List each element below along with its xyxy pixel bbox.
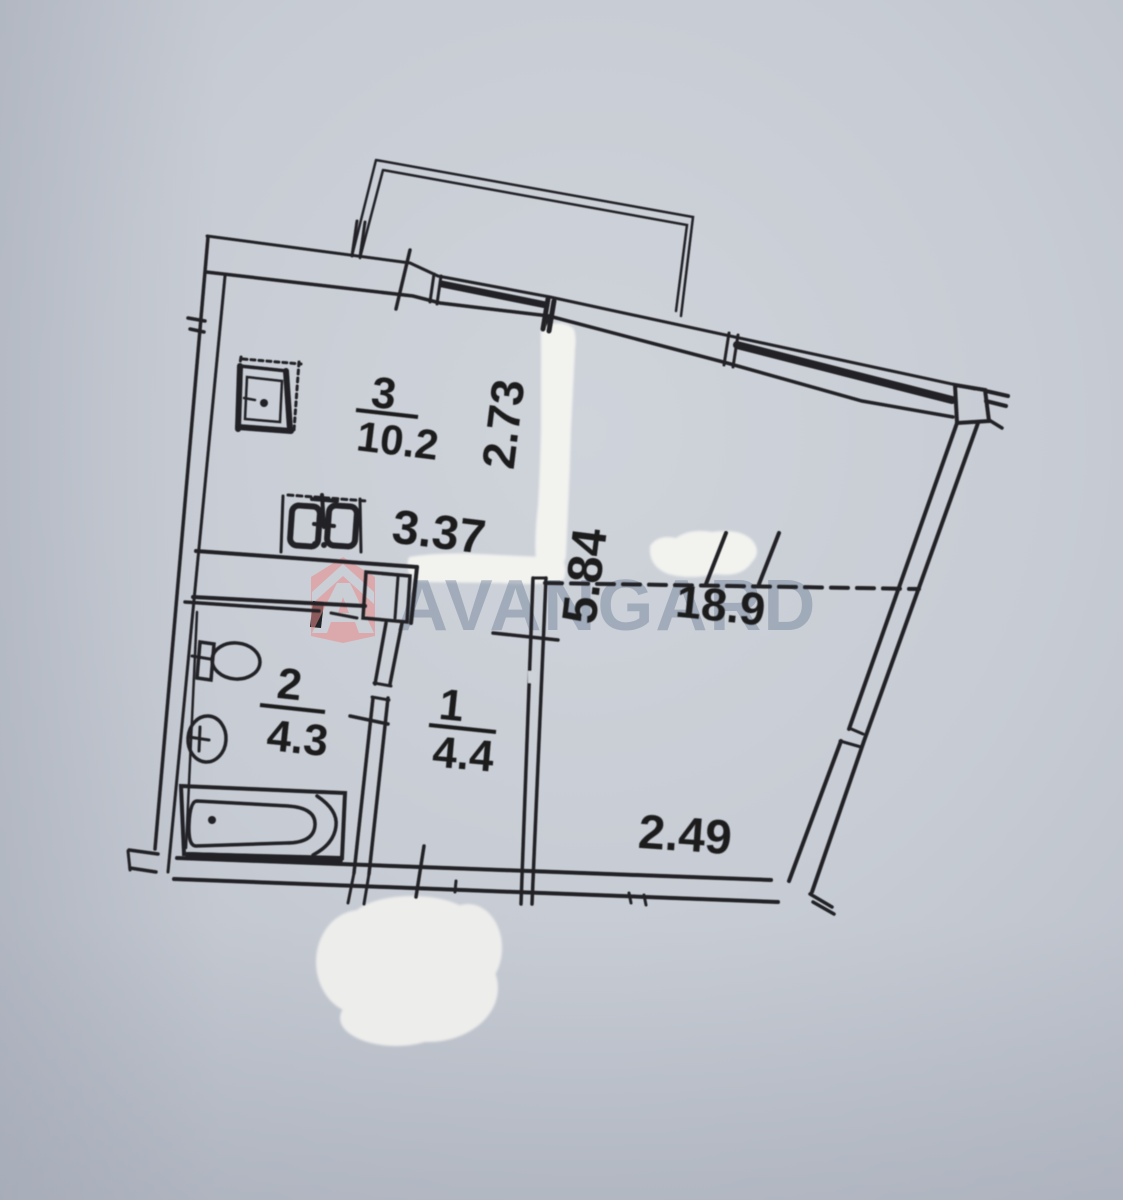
- svg-text:4.3: 4.3: [265, 711, 331, 766]
- svg-text:4.4: 4.4: [431, 727, 497, 781]
- svg-text:2.73: 2.73: [472, 376, 535, 471]
- svg-text:10.2: 10.2: [354, 412, 441, 469]
- svg-text:2.49: 2.49: [637, 806, 734, 865]
- svg-text:3.37: 3.37: [389, 501, 488, 565]
- svg-text:2: 2: [275, 659, 304, 710]
- svg-text:5.84: 5.84: [553, 525, 618, 626]
- svg-text:18.9: 18.9: [673, 575, 767, 636]
- svg-text:1: 1: [437, 680, 466, 731]
